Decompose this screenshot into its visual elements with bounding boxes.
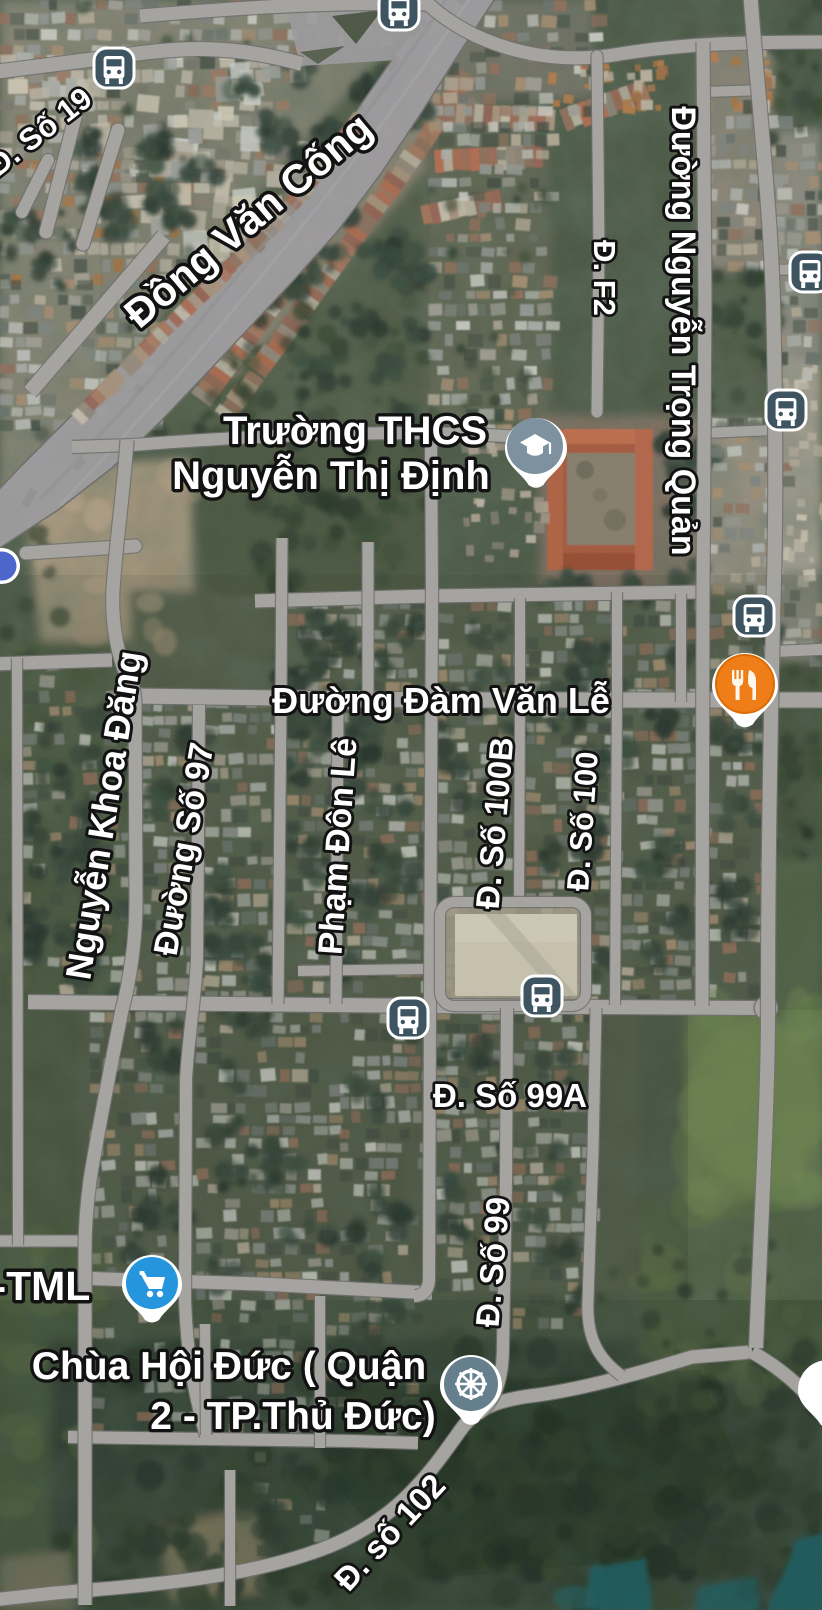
svg-text:Đ. F2: Đ. F2	[587, 240, 622, 316]
svg-text:Đường Nguyễn Trọng Quản: Đường Nguyễn Trọng Quản	[664, 106, 702, 555]
svg-text:Đ. Số 99A: Đ. Số 99A	[433, 1077, 587, 1114]
svg-text:Chùa Hội Đức ( Quận: Chùa Hội Đức ( Quận	[32, 1345, 426, 1388]
svg-text:2 - TP.Thủ Đức): 2 - TP.Thủ Đức)	[150, 1395, 435, 1438]
svg-text:Trường THCS: Trường THCS	[223, 409, 487, 453]
svg-text:7-TML: 7-TML	[0, 1263, 90, 1309]
svg-text:Nguyễn Thị Định: Nguyễn Thị Định	[172, 452, 490, 498]
svg-text:Đường Đàm Văn Lễ: Đường Đàm Văn Lễ	[272, 680, 610, 721]
